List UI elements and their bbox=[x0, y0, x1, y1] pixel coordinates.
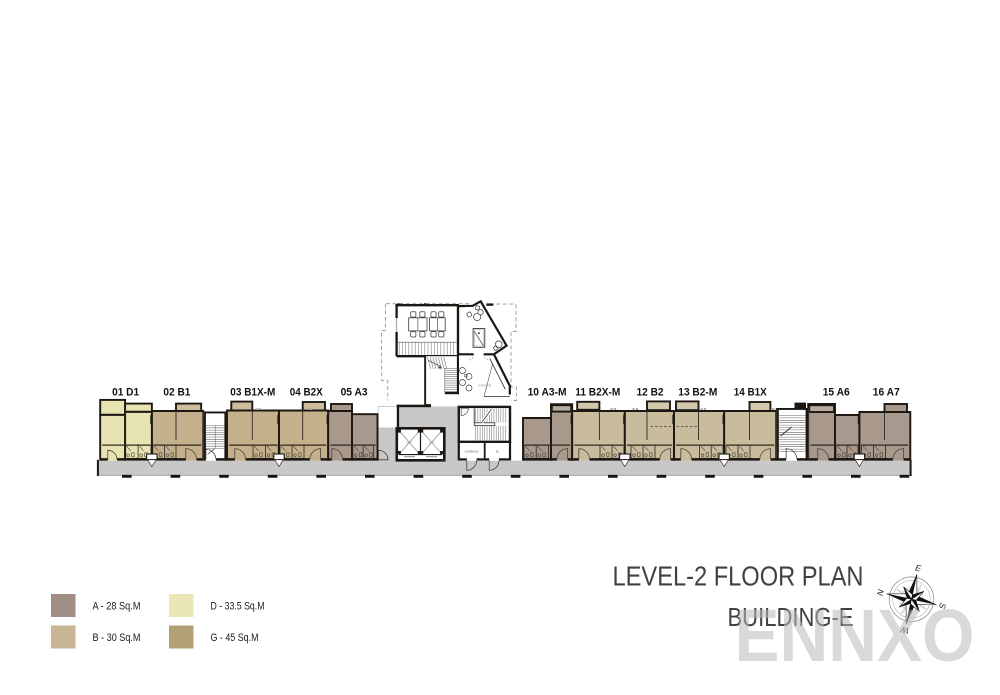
svg-text:B - 30 Sq.M: B - 30 Sq.M bbox=[93, 632, 141, 644]
svg-text:15 A6: 15 A6 bbox=[823, 386, 850, 398]
svg-text:03 B1X-M: 03 B1X-M bbox=[230, 386, 275, 398]
svg-text:10 A3-M: 10 A3-M bbox=[528, 386, 567, 398]
svg-text:13 B2-M: 13 B2-M bbox=[678, 386, 717, 398]
svg-text:A - 28 Sq.M: A - 28 Sq.M bbox=[93, 601, 141, 613]
svg-text:04 B2X: 04 B2X bbox=[290, 386, 323, 398]
svg-text:G - 45 Sq.M: G - 45 Sq.M bbox=[211, 632, 259, 644]
svg-text:01 D1: 01 D1 bbox=[112, 386, 139, 398]
svg-text:02 B1: 02 B1 bbox=[163, 386, 190, 398]
svg-text:OUTDOOR: OUTDOOR bbox=[478, 383, 491, 387]
svg-text:12 B2: 12 B2 bbox=[637, 386, 664, 398]
svg-text:D - 33.5 Sq.M: D - 33.5 Sq.M bbox=[211, 601, 265, 613]
svg-text:LIFT: LIFT bbox=[429, 441, 435, 445]
svg-text:14 B1X: 14 B1X bbox=[734, 386, 767, 398]
svg-text:GARBAGE: GARBAGE bbox=[465, 449, 479, 453]
svg-text:LIFT: LIFT bbox=[407, 441, 413, 445]
svg-text:16 A7: 16 A7 bbox=[873, 386, 900, 398]
svg-text:11 B2X-M: 11 B2X-M bbox=[575, 386, 620, 398]
svg-text:05 A3: 05 A3 bbox=[341, 386, 368, 398]
svg-text:LEVEL-2 FLOOR PLAN: LEVEL-2 FLOOR PLAN bbox=[613, 561, 864, 592]
svg-text:EL: EL bbox=[496, 449, 500, 453]
svg-text:ENNXO: ENNXO bbox=[735, 594, 975, 677]
